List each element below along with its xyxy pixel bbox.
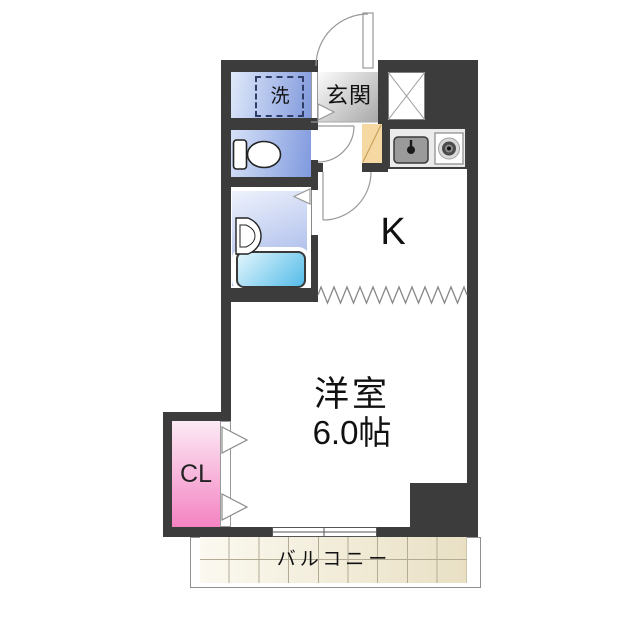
bathtub-icon: [236, 251, 306, 288]
wall: [388, 120, 467, 128]
wall: [221, 60, 231, 412]
entrance-door-arc-icon: [316, 13, 373, 68]
closet-door-strip: [220, 421, 231, 527]
toilet-door-arc-icon: [318, 126, 354, 162]
kitchen-door-arc-icon: [323, 172, 371, 220]
balcony-label: バルコニー: [234, 548, 434, 572]
wall: [311, 163, 323, 172]
wall: [311, 122, 318, 128]
wall: [378, 60, 478, 72]
wall: [377, 527, 467, 537]
wall: [221, 60, 318, 72]
wall: [425, 72, 467, 120]
wall: [467, 60, 478, 537]
sliding-window-icon: [272, 527, 377, 537]
wall: [410, 483, 467, 527]
floor-plan: 洗 玄関 K 洋室 6.0帖 CL バルコニー: [0, 0, 640, 640]
western-room-label: 洋室: [262, 375, 442, 415]
wall: [163, 412, 172, 537]
shoe-cabinet-icon: [362, 124, 382, 163]
western-room-size: 6.0帖: [262, 414, 442, 452]
laundry-label: 洗: [257, 86, 303, 108]
toilet-room: [231, 130, 311, 177]
laundry-door-strip: [311, 72, 318, 122]
wall: [311, 235, 318, 302]
kitchen-label: K: [372, 211, 414, 253]
wall: [163, 412, 231, 421]
wall: [362, 163, 388, 172]
entrance-label: 玄関: [318, 83, 380, 109]
room-divider-zigzag-icon: [318, 287, 467, 303]
storage-x-box-icon: [388, 72, 425, 120]
closet-label: CL: [172, 460, 220, 488]
wall: [221, 118, 318, 130]
wall: [163, 527, 272, 537]
wall: [221, 288, 318, 302]
wall: [221, 177, 318, 187]
kitchen-counter: [388, 127, 467, 169]
